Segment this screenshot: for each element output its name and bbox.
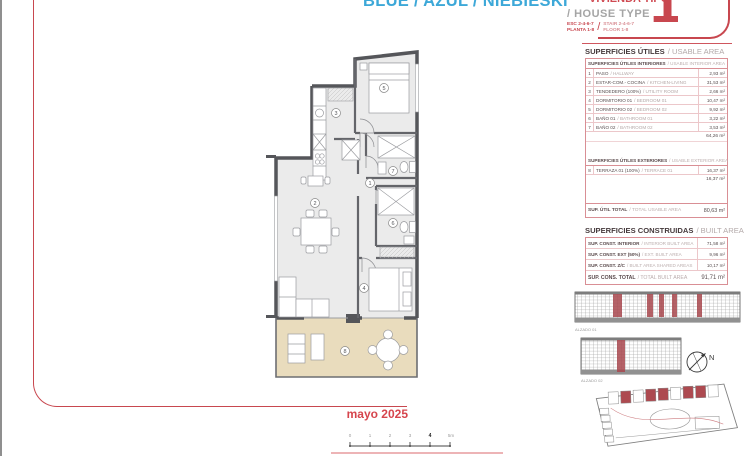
table-row: 5DORMITORIO 02/ BEDROOM 029,92 m²	[586, 105, 727, 114]
table-row: 4DORMITORIO 01/ BEDROOM 0110,47 m²	[586, 96, 727, 105]
site-plan	[596, 384, 738, 447]
table-row: 3TENDEDERO (100%)/ UTILITY ROOM2,66 m²	[586, 87, 727, 96]
built-area-heading: SUPERFICIES CONSTRUIDAS/ BUILT AREA	[585, 226, 744, 235]
room-label-4: 4	[360, 284, 369, 293]
table-gap	[586, 142, 727, 156]
room-label-2: 2	[311, 199, 320, 208]
table-row: SUP. CONST. EXT (50%)/ EXT. BUILT AREA9,…	[586, 249, 727, 260]
elevation-01: ALZADO 01	[575, 292, 740, 332]
svg-text:4: 4	[362, 286, 365, 292]
table-row: 6BAÑO 01/ BATHROOM 013,22 m²	[586, 114, 727, 123]
svg-text:5: 5	[382, 86, 385, 92]
floorplan-sheet: BLUE / AZUL / NIEBIESKI VIVIENDA TIPO / …	[0, 0, 756, 456]
scale-bar: 0 1 2 3 4 5m	[348, 433, 458, 451]
table-row: 1PASO/ HALLWAY2,93 m²	[586, 69, 727, 78]
wardrobe-hatch	[380, 247, 414, 258]
red-rule-above-tables	[582, 43, 732, 44]
table-row: SUP. CONST. Z/C/ BUILT AREA SHARED AREAS…	[586, 260, 727, 271]
scale-bar-line	[348, 433, 458, 451]
table-row: SUP. CONST. INTERIOR/ INTERIOR BUILT ARE…	[586, 238, 727, 249]
room-label-8: 8	[341, 347, 350, 356]
table-row: 8TERRAZA 01 (100%)/ TERRACE 0116,37 m²	[586, 166, 727, 175]
table-row: 7BAÑO 02/ BATHROOM 023,53 m²	[586, 123, 727, 132]
type-number: 1	[650, 0, 678, 36]
slash-divider: /	[597, 21, 600, 35]
interior-section-header: SUPERFICIES ÚTILES INTERIORES / USABLE I…	[586, 59, 727, 69]
svg-text:6: 6	[391, 221, 394, 227]
date-label: mayo 2025	[346, 407, 408, 421]
elevation-01-label: ALZADO 01	[575, 327, 597, 332]
svg-text:2: 2	[313, 201, 316, 207]
room-label-7: 7	[389, 167, 398, 176]
stair-floor-es: ESC 2-4-6-7 PLANTA 1-8	[567, 22, 594, 34]
elevation-02: ALZADO 02	[581, 338, 681, 383]
floor-plan: 1 2 3 4 5 6 7 8	[108, 46, 532, 398]
room-label-5: 5	[380, 84, 389, 93]
location-diagrams: ALZADO 01 ALZADO 02 N	[573, 290, 751, 456]
built-area-table: SUP. CONST. INTERIOR/ INTERIOR BUILT ARE…	[585, 237, 728, 285]
compass: N	[687, 352, 714, 372]
room-label-6: 6	[389, 219, 398, 228]
stair-floor-block: ESC 2-4-6-7 PLANTA 1-8 / STAIR 2-4-6-7 F…	[567, 21, 634, 35]
built-total-row: SUP. CONS. TOTAL/ TOTAL BUILT AREA91,71 …	[586, 271, 727, 284]
usable-total-row: SUP. ÚTIL TOTAL / TOTAL USABLE AREA 80,6…	[586, 203, 727, 217]
stair-floor-en: STAIR 2-4-6-7 FLOOR 1-8	[603, 22, 634, 34]
house-type-title-blue: BLUE / AZUL / NIEBIESKI	[363, 0, 568, 11]
exterior-subtotal: 16,37 m²	[586, 175, 727, 184]
room-label-3: 3	[332, 109, 341, 118]
red-rule-bottom	[331, 452, 503, 454]
exterior-section-header: SUPERFICIES ÚTILES EXTERIORES / USABLE E…	[586, 156, 727, 166]
elevation-02-label: ALZADO 02	[581, 378, 603, 383]
house-type-subtitle: / HOUSE TYPE	[567, 8, 650, 20]
usable-area-table: SUPERFICIES ÚTILES INTERIORES / USABLE I…	[585, 58, 728, 218]
usable-area-heading: SUPERFICIES ÚTILES/ USABLE AREA	[585, 47, 724, 56]
compass-north-label: N	[709, 353, 714, 362]
page-left-edge	[0, 0, 2, 456]
interior-subtotal: 64,26 m²	[586, 132, 727, 142]
bed-01	[369, 268, 412, 311]
svg-text:3: 3	[334, 111, 337, 117]
svg-text:8: 8	[343, 349, 346, 355]
svg-text:7: 7	[391, 169, 394, 175]
room-label-1: 1	[366, 179, 375, 188]
table-row: 2ESTAR-COM.- COCINA/ KITCHEN-LIVING31,53…	[586, 78, 727, 87]
svg-text:1: 1	[368, 181, 371, 187]
drying-area-hatch	[328, 88, 353, 101]
